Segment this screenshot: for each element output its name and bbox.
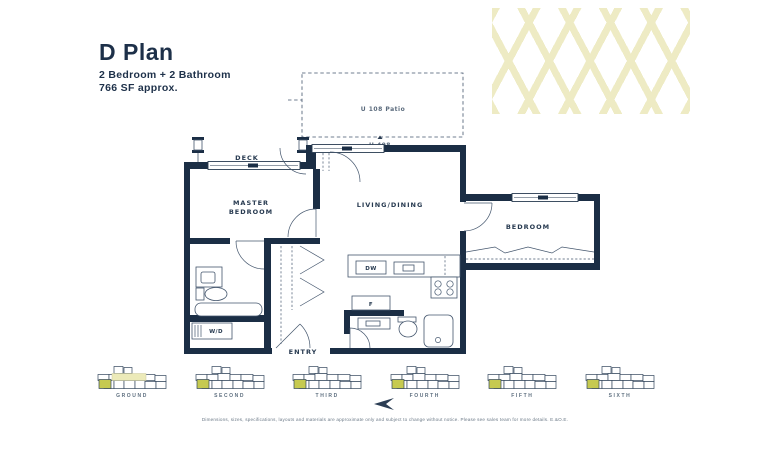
keyplan-fourth: FOURTH <box>383 366 467 399</box>
room-label-master-line2: BEDROOM <box>229 208 273 216</box>
keyplan-fifth: FIFTH <box>480 366 564 399</box>
keyplan-footprint-icon <box>486 366 558 390</box>
room-label-bedroom: BEDROOM <box>506 223 550 231</box>
bathroom-fixtures <box>358 315 453 347</box>
keyplan-ground: GROUND <box>90 366 174 399</box>
toilet-icon <box>196 288 204 300</box>
keyplan-footprint-icon <box>389 366 461 390</box>
bathtub-icon <box>195 303 262 316</box>
brochure-page: D Plan 2 Bedroom + 2 Bathroom 766 SF app… <box>0 0 770 450</box>
patio-outline: U 108 Patio U 408 <box>288 73 463 149</box>
room-label-living-dining: LIVING/DINING <box>357 201 424 209</box>
label-dishwasher: DW <box>365 266 376 272</box>
range-icon <box>431 277 457 298</box>
keyplan-label: GROUND <box>90 393 174 399</box>
keyplan-third: THIRD <box>285 366 369 399</box>
keyplan-sixth: SIXTH <box>578 366 662 399</box>
room-label-deck: DECK <box>235 154 259 162</box>
keyplan-label: SECOND <box>188 393 272 399</box>
windows <box>208 145 578 202</box>
room-label-entry: ENTRY <box>289 348 318 356</box>
keyplan-footprint-icon <box>584 366 656 390</box>
north-arrow-icon <box>374 398 394 410</box>
keyplan-second: SECOND <box>188 366 272 399</box>
keyplan-label: FOURTH <box>383 393 467 399</box>
patio-label: U 108 Patio <box>361 106 405 113</box>
keyplan-label: THIRD <box>285 393 369 399</box>
kitchen-fixtures <box>348 255 460 310</box>
label-washer-dryer: W/D <box>209 329 223 335</box>
keyplan-row: GROUND SECOND THIRD FOURTH FIFTH SIXTH <box>90 366 662 399</box>
keyplan-label: FIFTH <box>480 393 564 399</box>
keyplan-label: SIXTH <box>578 393 662 399</box>
label-fridge: F <box>369 302 373 308</box>
room-label-master-line1: MASTER <box>233 199 269 207</box>
disclaimer-text: Dimensions, sizes, specifications, layou… <box>0 417 770 422</box>
keyplan-footprint-icon <box>194 366 266 390</box>
ensuite-fixtures <box>192 267 262 339</box>
keyplan-footprint-icon <box>291 366 363 390</box>
keyplan-footprint-icon <box>96 366 168 390</box>
